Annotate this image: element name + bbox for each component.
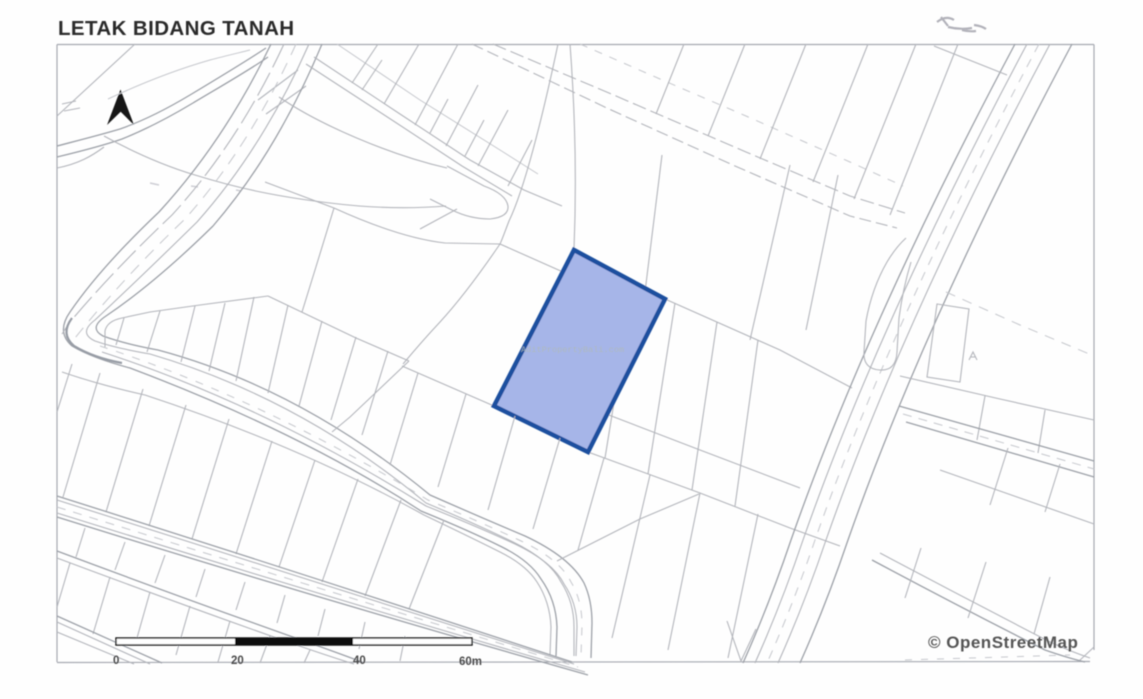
svg-text:60m: 60m [459,656,482,668]
svg-text:20: 20 [231,655,244,667]
svg-text:© OpenStreetMap: © OpenStreetMap [928,633,1078,652]
svg-text:40: 40 [353,655,366,667]
svg-text:0: 0 [113,655,119,667]
svg-text:AditPropertyBali.com: AditPropertyBali.com [521,345,624,355]
svg-text:LETAK BIDANG TANAH: LETAK BIDANG TANAH [58,17,294,40]
